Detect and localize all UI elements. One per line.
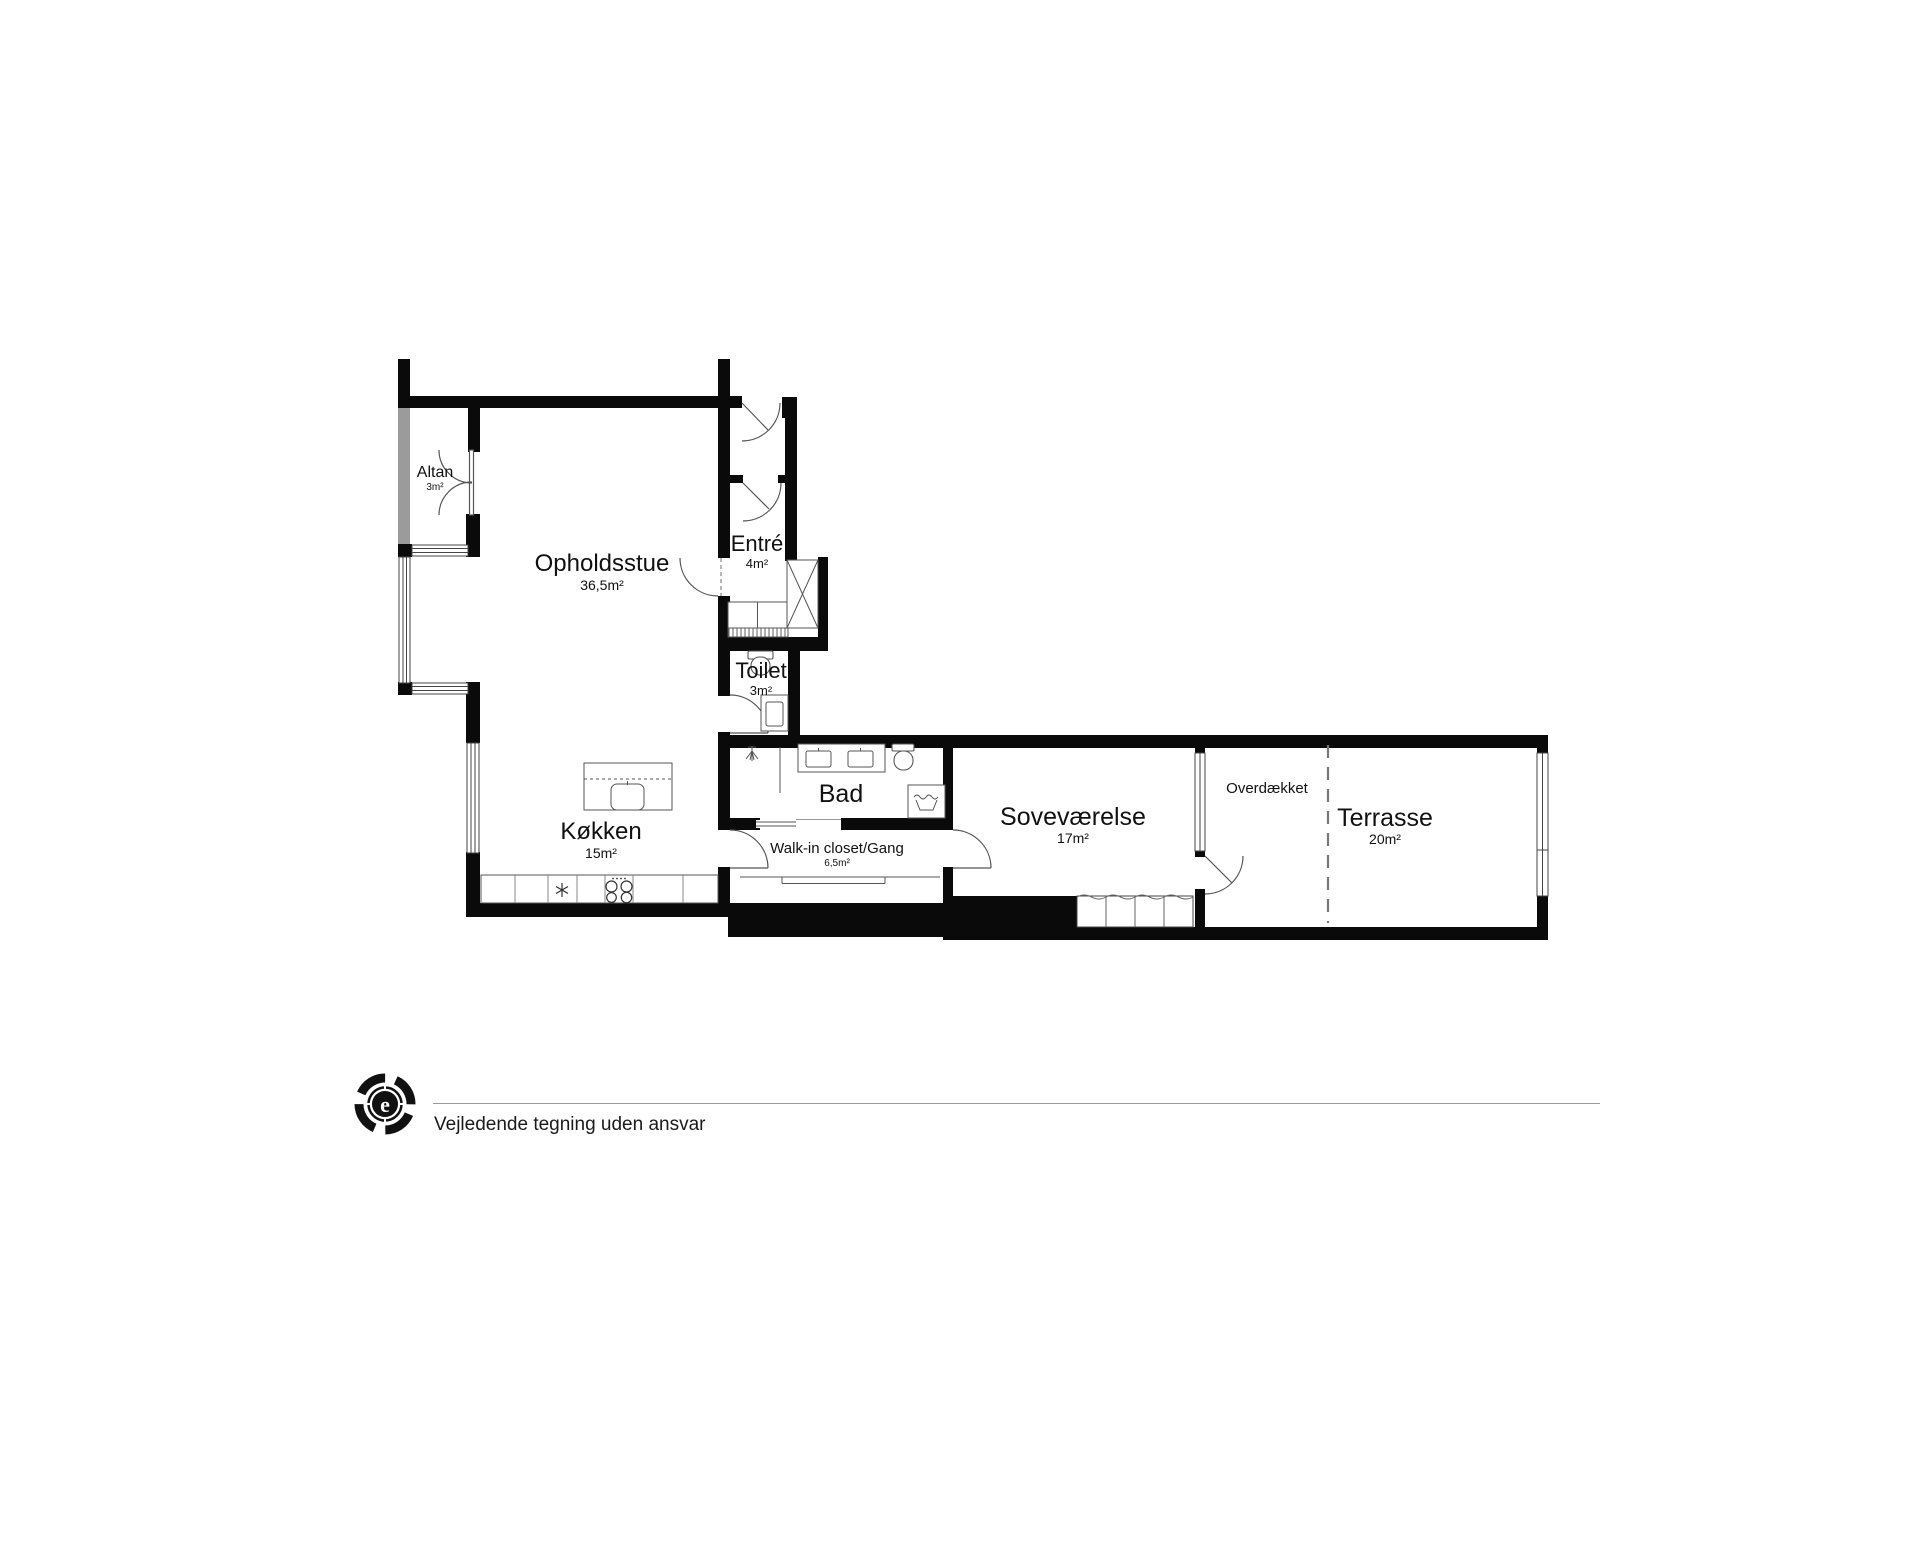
- footer-disclaimer: Vejledende tegning uden ansvar: [434, 1114, 706, 1136]
- room-label-walkin: Walk-in closet/Gang 6,5m²: [770, 841, 904, 869]
- shaft-icon: [787, 560, 818, 628]
- room-label-opholdsstue: Opholdsstue 36,5m²: [535, 551, 670, 594]
- room-label-terrasse: Terrasse 20m²: [1337, 804, 1433, 848]
- room-label-entre: Entré 4m²: [731, 532, 784, 571]
- bedroom-wardrobe: [1077, 895, 1193, 927]
- bad-sliding-door: [756, 820, 841, 829]
- room-label-altan: Altan 3m²: [417, 464, 453, 493]
- bathtub-icon: [908, 785, 945, 818]
- toilet-sink-icon: [761, 695, 788, 731]
- room-label-bad: Bad: [819, 780, 863, 808]
- floorplan-page: Altan 3m² Opholdsstue 36,5m² Entré 4m² T…: [0, 0, 1920, 1555]
- walkin-closet-front: [740, 877, 940, 884]
- room-label-koekken: Køkken 15m²: [560, 819, 641, 862]
- kitchen-counter: [481, 875, 718, 903]
- balcony-gray-wall: [398, 408, 410, 544]
- vanity-double-sink: [798, 744, 885, 772]
- kitchen-island: [584, 763, 672, 810]
- company-logo: e: [353, 1072, 417, 1141]
- room-label-sovevaerelse: Soveværelse 17m²: [1000, 803, 1146, 847]
- footer-divider: [433, 1103, 1600, 1104]
- bath-wc-icon: [892, 744, 914, 770]
- logo-letter: e: [380, 1092, 390, 1117]
- room-label-overdaekket: Overdækket: [1226, 781, 1308, 798]
- logo-icon: e: [353, 1072, 417, 1136]
- floorplan-drawing: [0, 0, 1920, 1555]
- entre-wardrobe: [728, 602, 788, 637]
- room-label-toilet: Toilet 3m²: [735, 659, 786, 698]
- shower-icon: [746, 746, 780, 793]
